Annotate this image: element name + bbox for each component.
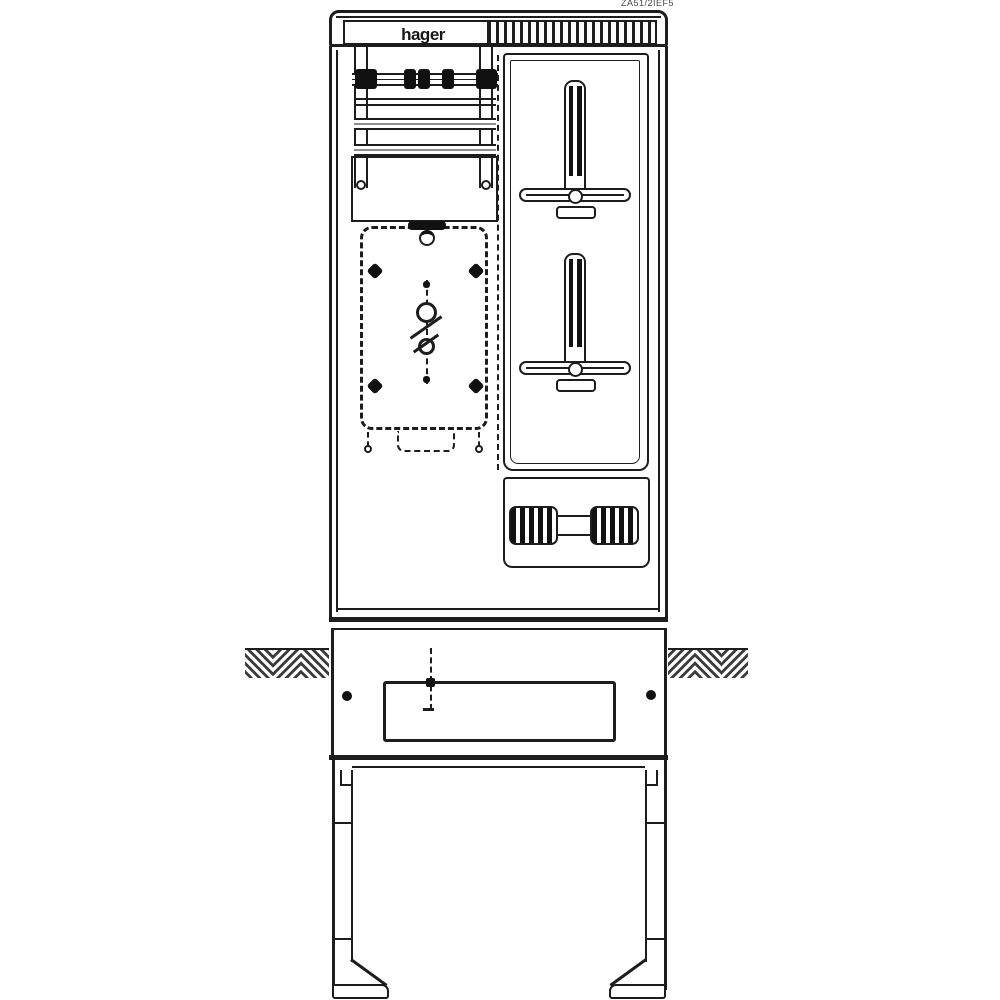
base-right-wall	[664, 628, 667, 758]
meter-plate-top-clamp	[408, 221, 446, 230]
left-foot	[332, 984, 389, 999]
left-leg-outer	[332, 758, 335, 990]
din-rail-1	[354, 98, 496, 106]
base-bottom-edge	[329, 755, 668, 760]
left-leg-notch-h	[340, 784, 352, 786]
plate-foot-circle-left	[364, 445, 372, 453]
vent-slats	[489, 20, 657, 45]
ground-hatch-left-a	[245, 650, 273, 678]
ground-hatch-left-c	[301, 650, 329, 678]
door-bottom-line	[336, 608, 660, 610]
ground-hatch-right-a	[668, 650, 695, 678]
right-foot	[609, 984, 666, 999]
busbar-clamp-mid1	[404, 69, 416, 89]
top-cap-logo-panel: hager	[343, 20, 489, 45]
busbar-clamp-mid2	[418, 69, 430, 89]
cable-axis-foot-tick	[423, 708, 434, 711]
left-leg-tick-2	[333, 938, 352, 940]
base-left-wall	[331, 628, 334, 758]
plate-foot-circle-right	[475, 445, 483, 453]
cable-entry-opening	[383, 681, 616, 742]
clamp-bolt-1-foot	[556, 206, 596, 219]
ground-hatch-left-b	[273, 650, 301, 678]
clamp-bolt-2-stem-fill	[569, 259, 582, 347]
left-leg-tick-1	[333, 822, 352, 824]
ground-hatch-right-b	[695, 650, 722, 678]
turnbuckle-left-block	[509, 506, 558, 545]
right-leg-inner	[645, 770, 647, 962]
din-rail-2	[354, 118, 496, 130]
right-leg-tick-2	[646, 938, 665, 940]
busbar-clamp-mid3	[442, 69, 454, 89]
left-leg-inner	[351, 770, 353, 962]
base-inner-bottom-line	[352, 766, 645, 768]
meter-plate-top-clamp-screw	[419, 230, 435, 246]
left-wall-outer	[329, 46, 332, 622]
din-rail-3	[354, 144, 496, 156]
busbar-clamp-left	[355, 69, 377, 89]
screw-symbol-axis	[426, 280, 428, 384]
clamp-bolt-1-nut	[568, 189, 583, 204]
meter-plate-terminal-dashed	[397, 431, 455, 452]
ground-hatch-right	[668, 648, 748, 678]
clamp-bolt-2-foot	[556, 379, 596, 392]
rail-tray	[351, 156, 498, 222]
clamp-bolt-1-stem-fill	[569, 86, 582, 176]
right-foot-diagonal	[610, 958, 647, 986]
compartment-partition-dashed	[497, 55, 499, 470]
cable-axis-cross-dot	[426, 678, 435, 687]
right-leg-notch-h	[646, 784, 658, 786]
ground-hatch-left	[245, 648, 329, 678]
right-leg-outer	[664, 758, 667, 990]
part-number-label: ZA51/2IEF5	[598, 0, 674, 8]
hager-logo: hager	[345, 22, 487, 47]
turnbuckle-middle-bar	[556, 515, 592, 536]
left-wall-inner	[336, 50, 338, 612]
ground-hatch-right-c	[721, 650, 748, 678]
base-screw-right	[646, 690, 656, 700]
screw-symbol-top-dot	[423, 281, 430, 288]
left-foot-diagonal	[350, 958, 387, 986]
top-cap-inner-line	[336, 16, 661, 18]
right-wall-outer	[665, 46, 668, 622]
screw-symbol-bottom-dot	[423, 376, 430, 383]
clamp-bolt-2-nut	[568, 362, 583, 377]
body-base-divider	[329, 617, 668, 622]
base-top-line	[331, 628, 667, 630]
base-screw-left	[342, 691, 352, 701]
turnbuckle-right-block	[590, 506, 639, 545]
right-wall-inner	[658, 50, 660, 612]
busbar-clamp-right	[476, 69, 497, 89]
technical-drawing-meter-cabinet: ZA51/2IEF5 hager	[0, 0, 1000, 1000]
right-leg-tick-1	[646, 822, 665, 824]
